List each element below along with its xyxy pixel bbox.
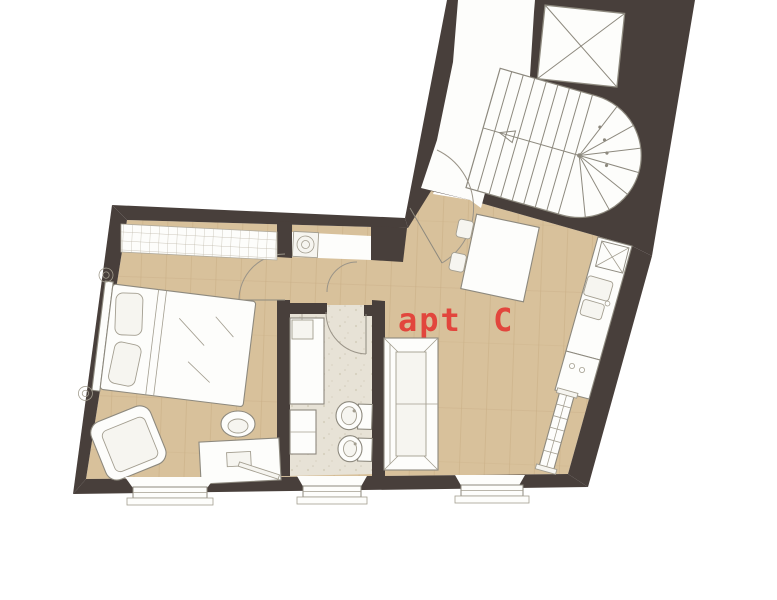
desk-chair-seat [228, 419, 248, 433]
pillow [115, 293, 143, 336]
bathroom-cabinet [290, 410, 316, 454]
bathroom-living-wall [372, 300, 385, 476]
window [297, 476, 367, 504]
dining-chair [456, 219, 474, 240]
lift-shaft [537, 5, 624, 87]
bathroom-top-wall [287, 303, 327, 314]
window-sill [455, 496, 529, 503]
window-sill [297, 497, 367, 504]
wardrobe-nook-wall [277, 221, 292, 258]
shower-counter [290, 314, 324, 404]
sofa [384, 338, 438, 470]
nook-right-wall [371, 226, 407, 262]
floor-plan-page: apt C [0, 0, 777, 600]
apartment-label: apt C [398, 301, 514, 339]
washbasin [292, 320, 313, 339]
bidet [338, 435, 373, 462]
toilet [336, 401, 373, 430]
window-sill [127, 498, 213, 505]
floor-plan-svg: apt C [0, 0, 777, 600]
dining-chair [448, 252, 466, 273]
window [125, 477, 215, 505]
washing-machine [292, 231, 318, 257]
window [455, 475, 529, 503]
